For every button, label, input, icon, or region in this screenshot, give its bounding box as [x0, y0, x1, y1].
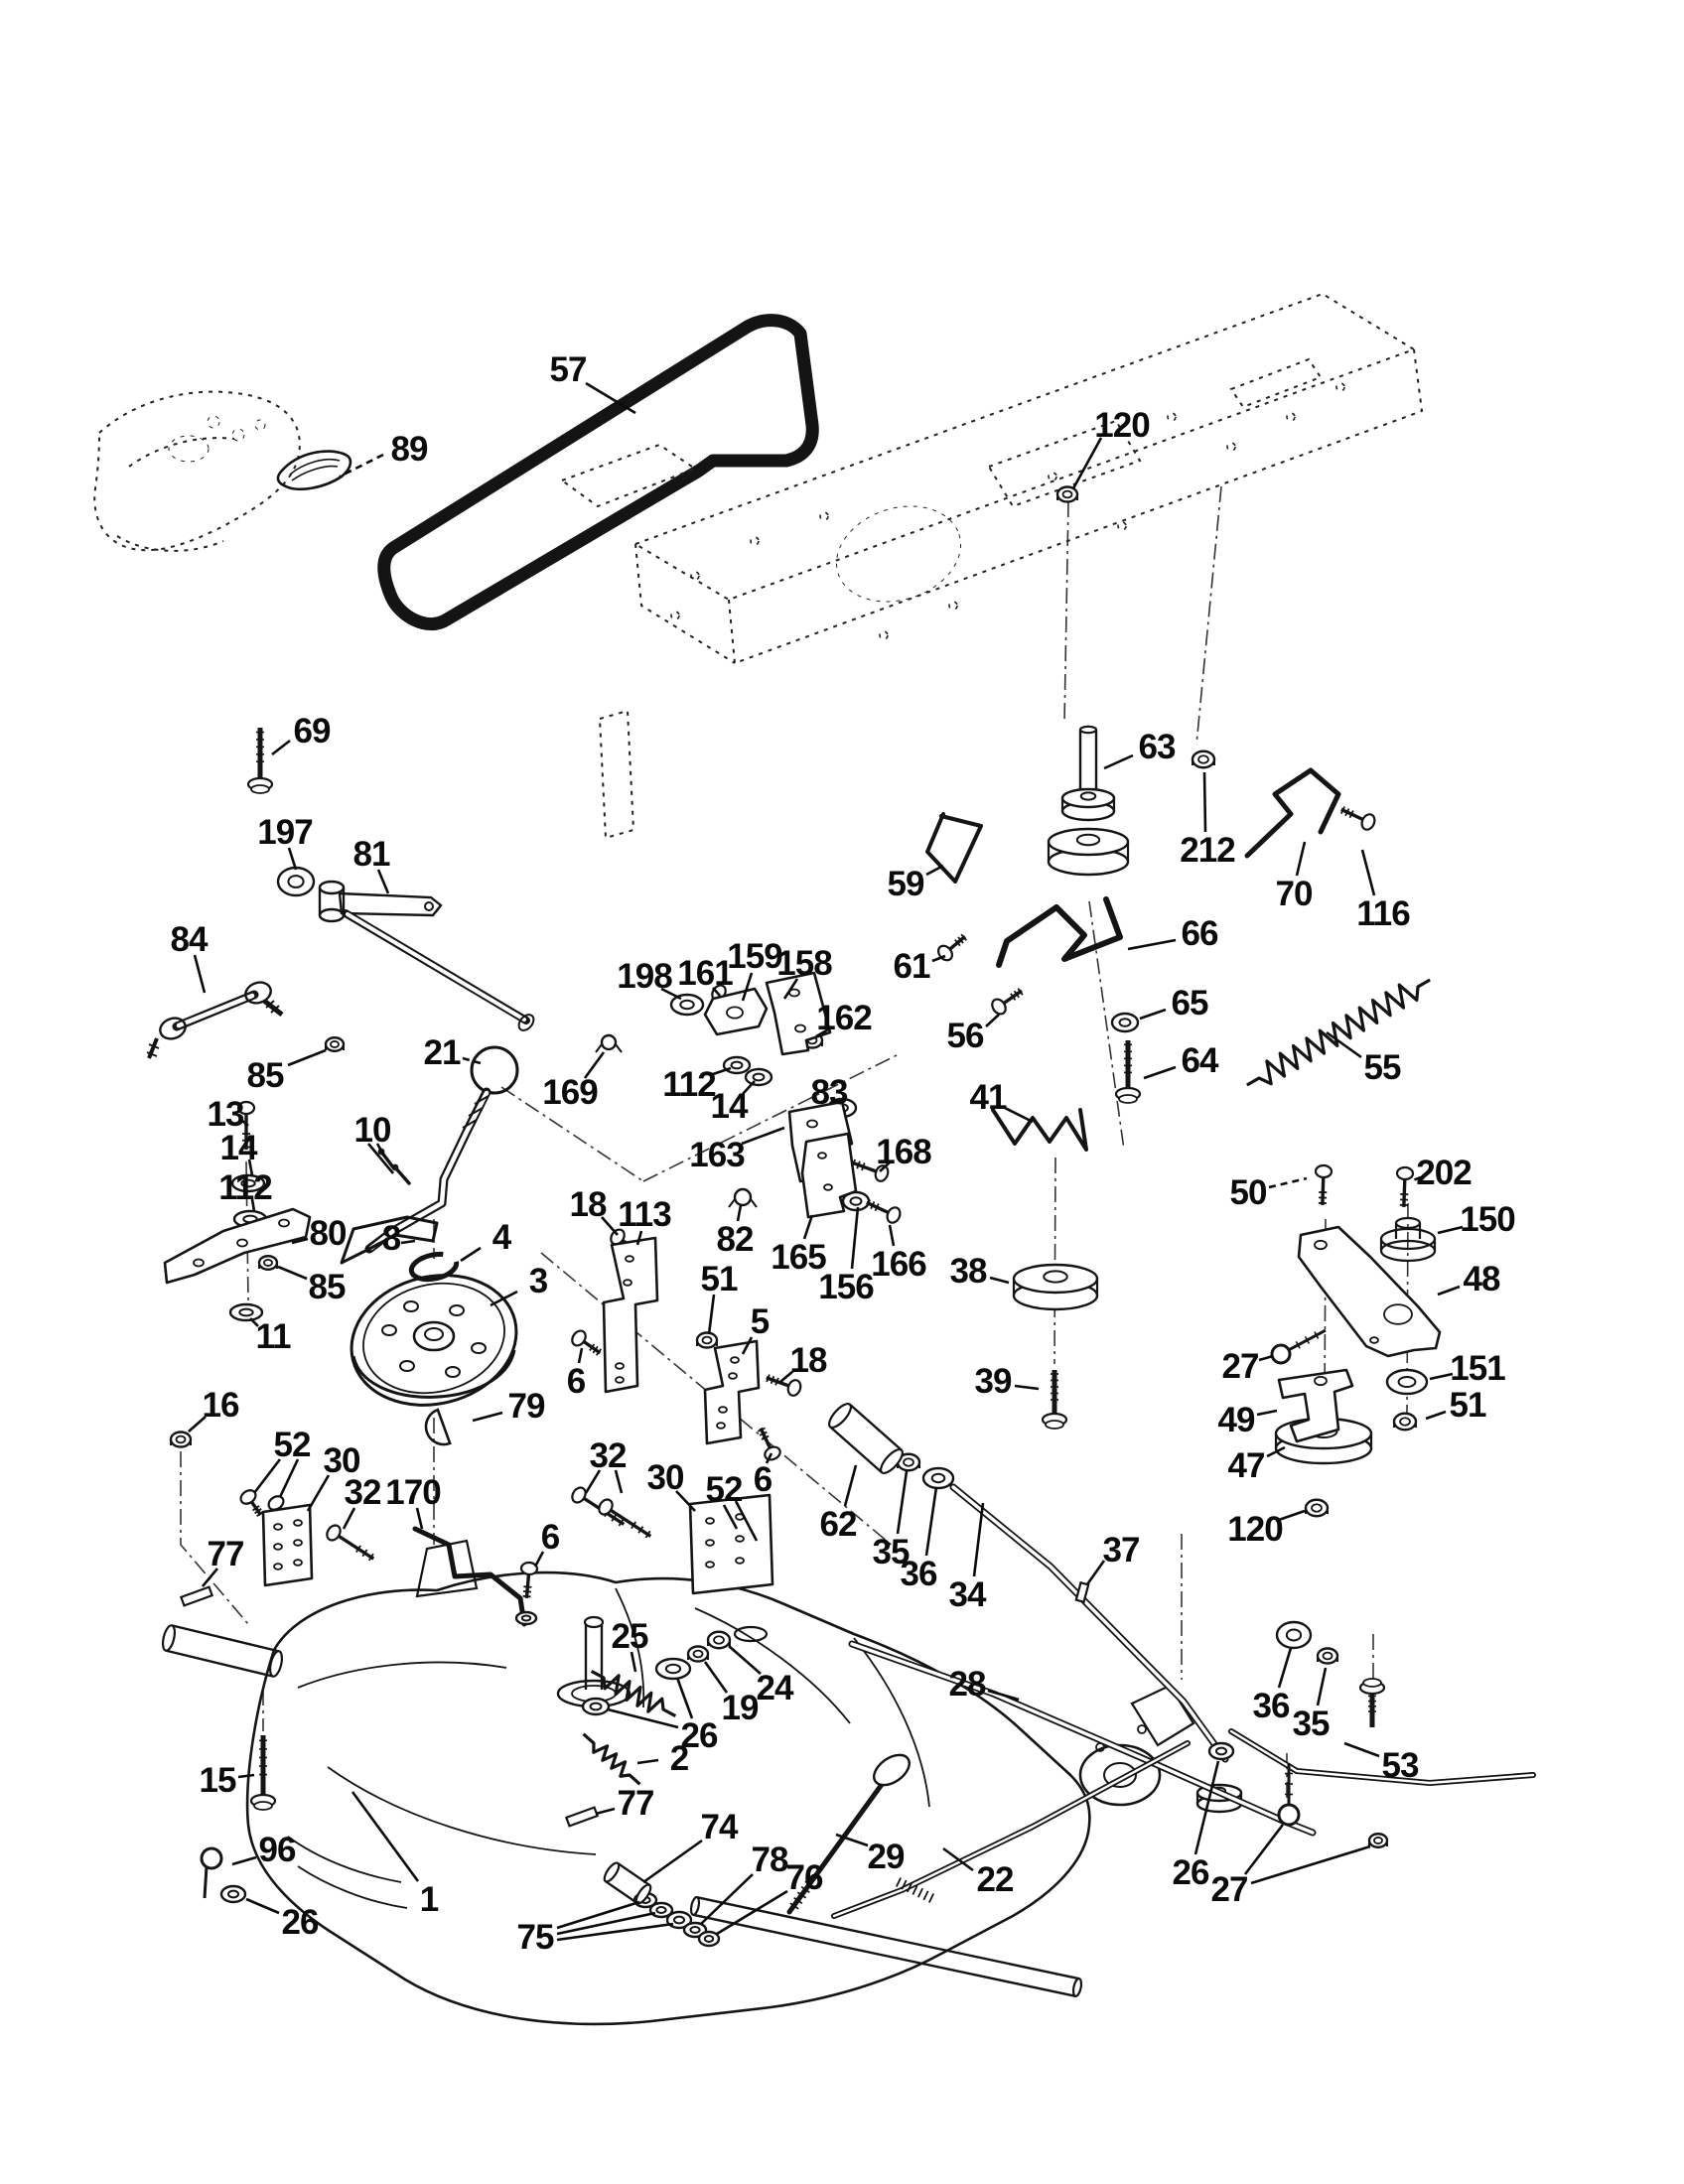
- callout-52-43: 52: [274, 1426, 311, 1464]
- ticks-22: [918, 1888, 922, 1897]
- callout-61-86: 61: [894, 947, 930, 986]
- callout-116-93: 116: [1356, 894, 1410, 933]
- leader-36: [1279, 1648, 1291, 1688]
- nut-16: [171, 1433, 191, 1447]
- leader-69: [272, 741, 290, 754]
- callout-77-61: 77: [618, 1784, 654, 1823]
- callout-21-15: 21: [424, 1033, 461, 1072]
- leader-163: [742, 1128, 784, 1144]
- callout-34-100: 34: [949, 1575, 987, 1614]
- leader-15: [238, 1775, 254, 1777]
- leader-35: [1318, 1668, 1326, 1706]
- callout-80-11: 80: [310, 1214, 347, 1253]
- static-artwork: [94, 294, 1435, 2024]
- leader-27: [1259, 1356, 1273, 1360]
- washer-112b: [724, 1057, 750, 1073]
- callout-52-49: 52: [706, 1470, 743, 1509]
- leader-84: [195, 955, 205, 993]
- callout-49-75: 49: [1218, 1401, 1255, 1439]
- leader-82: [738, 1205, 741, 1221]
- retainer-ring-4: [409, 1250, 459, 1283]
- axle-right: [693, 1915, 1075, 1996]
- callout-69-3: 69: [294, 712, 331, 751]
- callout-25-56: 25: [612, 1617, 648, 1656]
- callout-26-68: 26: [1173, 1853, 1209, 1892]
- callout-18-33: 18: [570, 1185, 607, 1224]
- drive-pulley-3: [338, 1259, 530, 1423]
- washer-36b: [923, 1468, 953, 1488]
- callout-47-74: 47: [1228, 1446, 1265, 1485]
- leader-48: [1438, 1287, 1460, 1295]
- callout-29-66: 29: [868, 1838, 905, 1876]
- callout-75-65: 75: [517, 1918, 554, 1957]
- leader-64: [1144, 1067, 1176, 1078]
- callout-81-5: 81: [353, 835, 390, 874]
- callout-89-1: 89: [391, 430, 428, 469]
- leader-6: [579, 1348, 582, 1363]
- callout-1-55: 1: [420, 1880, 439, 1919]
- transaxle-1: [247, 1539, 1193, 2024]
- washer-26-right: [656, 1659, 690, 1679]
- leader-156: [852, 1207, 858, 1269]
- leader-77: [596, 1809, 615, 1814]
- callout-10-16: 10: [354, 1111, 391, 1150]
- nut-212: [1193, 751, 1214, 768]
- hairpin-96: [202, 1848, 221, 1898]
- callout-163-26: 163: [689, 1136, 745, 1174]
- spacer-19: [688, 1647, 708, 1662]
- callout-24-57: 24: [757, 1669, 794, 1707]
- callout-59-85: 59: [888, 865, 924, 903]
- parts-diagram-page: 5789120691978184851314112808511162110816…: [0, 0, 1684, 2184]
- callout-198-19: 198: [617, 957, 672, 996]
- callout-112-24: 112: [662, 1065, 716, 1104]
- leader-53: [1344, 1743, 1379, 1756]
- callout-18-37: 18: [790, 1341, 827, 1380]
- leader-35: [898, 1471, 907, 1534]
- bracket-30b: [690, 1495, 772, 1593]
- washer-26-left: [583, 1699, 609, 1714]
- callout-14-9: 14: [220, 1129, 258, 1167]
- leader-79: [473, 1413, 502, 1421]
- leader-150: [1438, 1227, 1463, 1233]
- centerline-0: [1064, 501, 1068, 723]
- washer-198: [671, 995, 703, 1015]
- callout-36-99: 36: [901, 1555, 937, 1593]
- callout-113-34: 113: [618, 1195, 671, 1234]
- generated-parts: [161, 487, 1533, 1997]
- woodruff-key-79: [421, 1410, 450, 1449]
- leader-85: [288, 1050, 326, 1065]
- leader-1: [352, 1792, 418, 1881]
- callout-53-70: 53: [1382, 1746, 1419, 1785]
- callout-83-27: 83: [811, 1073, 848, 1112]
- parts-diagram-canvas: 5789120691978184851314112808511162110816…: [0, 0, 1684, 2184]
- shift-lever-8: [342, 1047, 517, 1263]
- callout-85-12: 85: [309, 1268, 346, 1306]
- leader-52: [254, 1459, 280, 1493]
- callout-150-79: 150: [1460, 1200, 1515, 1239]
- leader-27: [1245, 1825, 1283, 1874]
- ticks-22: [923, 1891, 927, 1900]
- callout-65-89: 65: [1172, 984, 1208, 1023]
- washer-76: [699, 1932, 719, 1946]
- callout-30-48: 30: [647, 1458, 684, 1497]
- callout-6-38: 6: [567, 1362, 586, 1401]
- rod-170: [415, 1529, 524, 1624]
- drag-link-84: [147, 979, 282, 1058]
- nut-27: [1369, 1834, 1387, 1847]
- callout-37-101: 37: [1103, 1531, 1140, 1570]
- callout-212-84: 212: [1180, 831, 1235, 870]
- callout-197-4: 197: [257, 813, 312, 852]
- leader-4: [461, 1248, 481, 1261]
- wire-59: [927, 814, 981, 882]
- leader-89: [340, 455, 383, 477]
- leader-63: [1104, 755, 1133, 768]
- washer-151: [1387, 1370, 1427, 1394]
- callout-82-29: 82: [717, 1220, 754, 1259]
- centerline-16: [1196, 486, 1221, 745]
- callout-169-18: 169: [542, 1073, 598, 1112]
- callout-62-97: 62: [820, 1505, 857, 1544]
- callout-170-46: 170: [385, 1473, 441, 1512]
- wire-66: [999, 899, 1120, 965]
- wire-70: [1247, 770, 1338, 856]
- callout-76-64: 76: [786, 1858, 823, 1897]
- leader-8: [401, 1241, 415, 1243]
- washer-26c: [1209, 1743, 1233, 1759]
- leader-52: [280, 1459, 298, 1497]
- nut-120b: [1306, 1500, 1328, 1517]
- callout-36-71: 36: [1253, 1687, 1290, 1725]
- spacer-74: [606, 1881, 637, 1903]
- callout-159-21: 159: [727, 937, 782, 976]
- washer-36a: [1277, 1622, 1311, 1648]
- clip-82: [735, 1189, 751, 1205]
- wire-41: [993, 1110, 1086, 1150]
- leader-120: [1073, 438, 1101, 488]
- rod-34: [953, 1487, 1225, 1759]
- callout-166-32: 166: [871, 1245, 926, 1284]
- callout-22-67: 22: [977, 1860, 1014, 1899]
- callout-11-13: 11: [256, 1317, 292, 1356]
- leader-75: [557, 1924, 673, 1940]
- callout-39-96: 39: [975, 1362, 1012, 1401]
- frame-hanger-plate: [600, 711, 633, 838]
- callout-161-20: 161: [677, 954, 733, 993]
- callout-168-28: 168: [876, 1133, 931, 1171]
- callout-51-35: 51: [701, 1260, 738, 1298]
- cover-89: [278, 452, 351, 489]
- callout-3-41: 3: [529, 1262, 548, 1300]
- callout-112-10: 112: [218, 1168, 272, 1207]
- knob-21: [472, 1047, 517, 1093]
- leader-34: [974, 1503, 983, 1576]
- leader-26: [677, 1678, 692, 1718]
- callout-27-76: 27: [1222, 1347, 1259, 1386]
- callout-158-22: 158: [776, 944, 832, 983]
- callout-156-31: 156: [818, 1268, 874, 1306]
- leader-66: [1128, 940, 1176, 949]
- callout-41-94: 41: [970, 1078, 1007, 1117]
- callout-70-92: 70: [1276, 875, 1313, 913]
- leader-51: [709, 1295, 714, 1334]
- leader-27: [1251, 1846, 1370, 1883]
- leader-74: [643, 1841, 702, 1882]
- callout-63-83: 63: [1139, 728, 1176, 766]
- callout-32-47: 32: [590, 1436, 627, 1475]
- callout-162-23: 162: [816, 999, 872, 1037]
- callout-6-39: 6: [754, 1460, 772, 1499]
- callout-2-60: 2: [670, 1739, 689, 1778]
- callout-51-82: 51: [1450, 1386, 1486, 1425]
- eyebolt-27b: [1279, 1805, 1299, 1825]
- leader-62: [845, 1465, 856, 1506]
- nut-85b: [259, 1256, 277, 1270]
- leader-30: [308, 1475, 329, 1511]
- key-77b: [566, 1808, 597, 1827]
- callout-38-95: 38: [950, 1252, 987, 1291]
- washer-14b: [746, 1069, 772, 1085]
- leader-59: [926, 866, 943, 875]
- leader-55: [1327, 1032, 1361, 1057]
- callout-74-62: 74: [701, 1808, 739, 1846]
- leader-49: [1257, 1411, 1277, 1415]
- leader-36: [926, 1487, 936, 1556]
- bushing-197: [278, 868, 314, 895]
- clip-169: [602, 1035, 616, 1049]
- callout-19-58: 19: [722, 1689, 759, 1727]
- ground-drive-belt-57: [384, 321, 813, 624]
- clutch-shaft-81: [320, 882, 536, 1033]
- washer-6b-tip: [516, 1612, 536, 1624]
- leader-3: [491, 1292, 517, 1305]
- washer-26a: [221, 1886, 245, 1902]
- callout-84-6: 84: [171, 920, 209, 959]
- callout-55-91: 55: [1364, 1048, 1401, 1087]
- nut-85a: [326, 1037, 344, 1051]
- nut-24: [708, 1632, 730, 1649]
- callout-120-2: 120: [1094, 406, 1150, 445]
- callout-120-73: 120: [1227, 1510, 1283, 1549]
- leader-166: [890, 1225, 894, 1246]
- nut-51b: [1394, 1414, 1416, 1431]
- callout-85-7: 85: [247, 1056, 284, 1095]
- callout-57-0: 57: [550, 350, 587, 389]
- callout-77-51: 77: [208, 1535, 244, 1573]
- callout-78-63: 78: [752, 1841, 788, 1879]
- bracket-30a: [263, 1505, 312, 1585]
- callout-5-36: 5: [751, 1302, 770, 1341]
- centerline-2: [1054, 1158, 1055, 1364]
- eyebolt-27a: [1272, 1345, 1290, 1363]
- callout-4-42: 4: [492, 1218, 512, 1257]
- ticks-22: [929, 1894, 933, 1903]
- callout-15-52: 15: [200, 1761, 236, 1800]
- callout-151-81: 151: [1450, 1349, 1505, 1388]
- ferrule-29: [869, 1749, 915, 1792]
- leader-212: [1204, 772, 1205, 832]
- callout-64-90: 64: [1182, 1041, 1219, 1080]
- leader-65: [1140, 1010, 1166, 1019]
- leader-70: [1297, 842, 1305, 876]
- leader-165: [804, 1215, 812, 1239]
- spring-2: [584, 1734, 640, 1785]
- spring-55: [1247, 980, 1430, 1085]
- callout-56-87: 56: [947, 1017, 984, 1055]
- callout-66-88: 66: [1182, 914, 1218, 953]
- dash-console-outline: [94, 392, 300, 551]
- leader-41: [1005, 1108, 1033, 1122]
- nut-35a: [1318, 1649, 1337, 1664]
- chassis-frame: [562, 294, 1422, 838]
- nut-120a: [1057, 487, 1077, 502]
- leader-85: [278, 1267, 307, 1279]
- leader-116: [1362, 850, 1374, 895]
- bolt-32a: [334, 1533, 373, 1559]
- nut-51a: [697, 1333, 717, 1348]
- callout-96-53: 96: [259, 1831, 296, 1869]
- callout-8-17: 8: [382, 1219, 401, 1258]
- leader-96: [232, 1857, 256, 1864]
- callout-32-45: 32: [345, 1473, 381, 1512]
- leader-56: [986, 1015, 999, 1026]
- ticks-22: [897, 1878, 901, 1887]
- key-77a: [181, 1587, 211, 1606]
- callout-27-69: 27: [1211, 1870, 1248, 1909]
- callout-35-72: 35: [1293, 1705, 1330, 1743]
- leader-26: [246, 1899, 279, 1913]
- callout-28-102: 28: [949, 1665, 986, 1704]
- leader-50: [1269, 1178, 1307, 1187]
- callout-50-77: 50: [1230, 1173, 1267, 1212]
- callout-6-50: 6: [541, 1518, 560, 1557]
- callout-16-14: 16: [203, 1386, 239, 1425]
- callout-26-54: 26: [282, 1903, 319, 1942]
- washer-65: [1112, 1014, 1138, 1031]
- axle-tube-left: [166, 1651, 273, 1677]
- leader-51: [1426, 1412, 1446, 1419]
- leader-37: [1087, 1561, 1104, 1584]
- leader-38: [990, 1278, 1009, 1283]
- callout-202-78: 202: [1416, 1154, 1472, 1192]
- callout-79-40: 79: [508, 1387, 545, 1426]
- callout-14-25: 14: [711, 1087, 749, 1126]
- callout-48-80: 48: [1464, 1260, 1500, 1298]
- leader-2: [637, 1760, 658, 1763]
- leader-39: [1015, 1386, 1039, 1389]
